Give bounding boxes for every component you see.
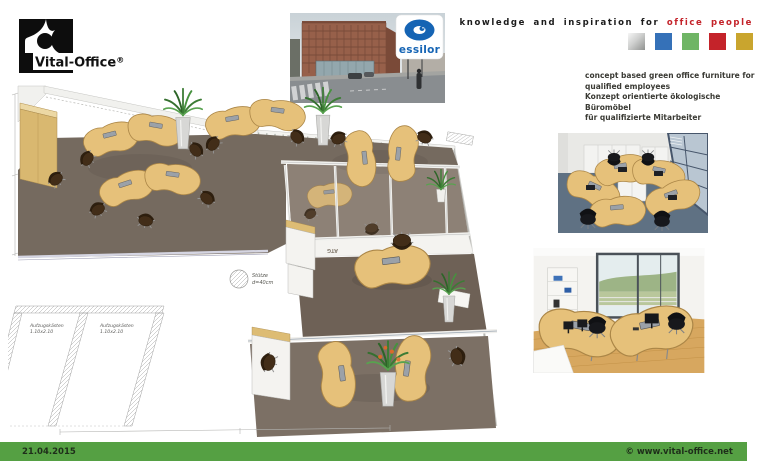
- essilor-logo: essilor: [396, 15, 443, 59]
- concept-line-3: Konzept orientierte ökologische Büromöbe…: [585, 92, 765, 113]
- floorplan-rendering: Aufzugskästen 1.10x2.10 Aufzugskästen 1.…: [8, 82, 500, 444]
- executive-office-photo: [533, 248, 705, 373]
- brand-color-squares: [628, 33, 753, 50]
- trees: [290, 39, 300, 83]
- column-diameter-label: d=40cm: [252, 280, 273, 286]
- elevator-shafts: Aufzugskästen 1.10x2.10 Aufzugskästen 1.…: [8, 306, 164, 426]
- website-label: © www.vital-office.net: [625, 447, 733, 457]
- date-label: 21.04.2015: [22, 447, 76, 457]
- palette-square-green: [682, 33, 699, 50]
- column-symbol: Stütze d=40cm: [230, 270, 273, 288]
- concept-line-2: qualified employees: [585, 82, 765, 93]
- concept-line-4: für qualifizierte Mitarbeiter: [585, 113, 765, 124]
- essilor-wordmark: essilor: [399, 44, 441, 56]
- floor-code-label: ATG: [327, 247, 338, 253]
- elevator-size-label: 1.10x2.10: [30, 329, 53, 335]
- concept-line-1: concept based green office furniture for: [585, 71, 765, 82]
- footer-bar: 21.04.2015 © www.vital-office.net: [0, 442, 747, 461]
- palette-square-blue: [655, 33, 672, 50]
- elevator-label: Aufzugskästen: [99, 323, 134, 329]
- tagline-red: office people: [667, 18, 753, 28]
- tagline-black: knowledge and inspiration for: [460, 18, 660, 28]
- slide-page: Vital-Office® knowledge and inspiration …: [0, 0, 768, 461]
- registered-mark-icon: ®: [116, 56, 124, 65]
- car: [364, 72, 374, 77]
- elevator-label: Aufzugskästen: [29, 323, 64, 329]
- palette-square-gold: [736, 33, 753, 50]
- car: [348, 73, 362, 79]
- concept-text: concept based green office furniture for…: [585, 71, 765, 124]
- palette-square-red: [709, 33, 726, 50]
- vital-office-logo: Vital-Office®: [19, 19, 141, 75]
- tagline: knowledge and inspiration for office peo…: [460, 18, 753, 28]
- office-building: [302, 21, 400, 81]
- logo-wordmark: Vital-Office®: [35, 56, 124, 71]
- column-label: Stütze: [252, 273, 268, 279]
- palette-square-silver: [628, 33, 645, 50]
- team-office-photo: [558, 133, 708, 233]
- elevator-size-label: 1.10x2.10: [100, 329, 123, 335]
